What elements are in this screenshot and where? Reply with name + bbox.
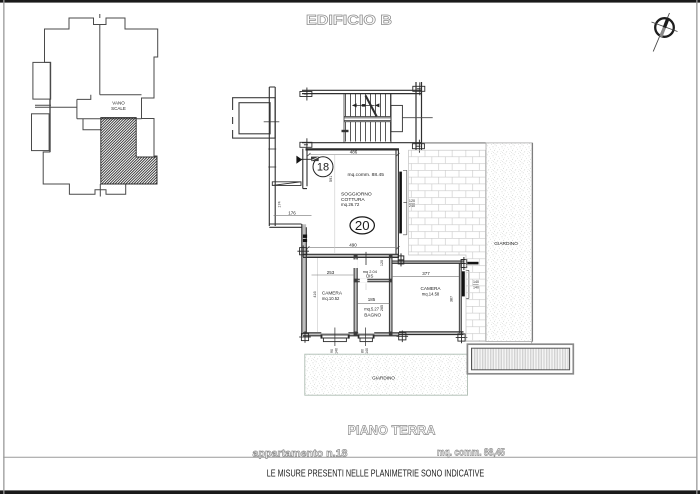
svg-text:486: 486 <box>350 150 358 155</box>
svg-text:377: 377 <box>422 271 430 276</box>
svg-text:253: 253 <box>327 270 335 275</box>
svg-text:490: 490 <box>349 243 357 248</box>
svg-text:174: 174 <box>278 201 282 207</box>
svg-text:mq. comm. 88,45: mq. comm. 88,45 <box>437 447 505 459</box>
svg-text:265: 265 <box>380 305 384 311</box>
svg-text:SOGGIORNO: SOGGIORNO <box>341 191 372 197</box>
svg-text:90: 90 <box>330 349 334 353</box>
svg-text:387: 387 <box>449 296 453 302</box>
svg-text:140: 140 <box>365 348 369 354</box>
svg-text:18: 18 <box>317 162 329 174</box>
svg-text:mq.14.58: mq.14.58 <box>422 292 440 297</box>
svg-text:416: 416 <box>313 291 317 297</box>
svg-text:appartamento n.18: appartamento n.18 <box>253 447 348 459</box>
svg-text:140: 140 <box>335 348 339 354</box>
svg-text:mq.5.27: mq.5.27 <box>364 306 380 311</box>
svg-text:VANO: VANO <box>112 100 125 105</box>
svg-text:176: 176 <box>288 210 296 215</box>
svg-text:EDIFICIO B: EDIFICIO B <box>306 13 392 28</box>
svg-text:185: 185 <box>368 297 376 302</box>
svg-text:GIARDINO: GIARDINO <box>494 241 518 246</box>
svg-text:BAGNO: BAGNO <box>364 312 381 317</box>
svg-text:mq.comm. 88.45: mq.comm. 88.45 <box>348 172 385 178</box>
svg-text:591: 591 <box>329 176 333 182</box>
svg-text:80: 80 <box>361 349 365 353</box>
svg-text:CAMERA: CAMERA <box>322 291 343 296</box>
svg-text:DIS: DIS <box>366 274 373 279</box>
svg-text:20: 20 <box>355 218 370 233</box>
svg-text:GIARDINO: GIARDINO <box>372 375 395 380</box>
svg-text:LE MISURE PRESENTI NELLE PLANI: LE MISURE PRESENTI NELLE PLANIMETRIE SON… <box>267 468 485 479</box>
svg-text:PIANO TERRA: PIANO TERRA <box>348 422 437 437</box>
svg-text:CAMERA: CAMERA <box>420 286 441 291</box>
svg-text:mq.10.52: mq.10.52 <box>322 296 340 301</box>
svg-text:120: 120 <box>380 260 384 266</box>
svg-text:SCALE: SCALE <box>111 106 126 111</box>
svg-text:mq.26.72: mq.26.72 <box>341 202 360 207</box>
